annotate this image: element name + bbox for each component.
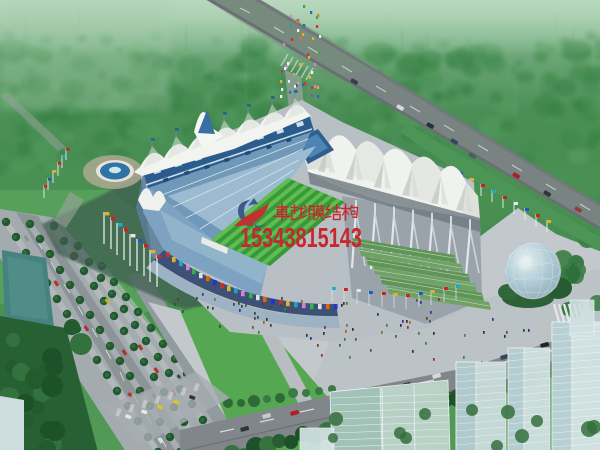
svg-text:15343815143: 15343815143 <box>240 222 362 253</box>
